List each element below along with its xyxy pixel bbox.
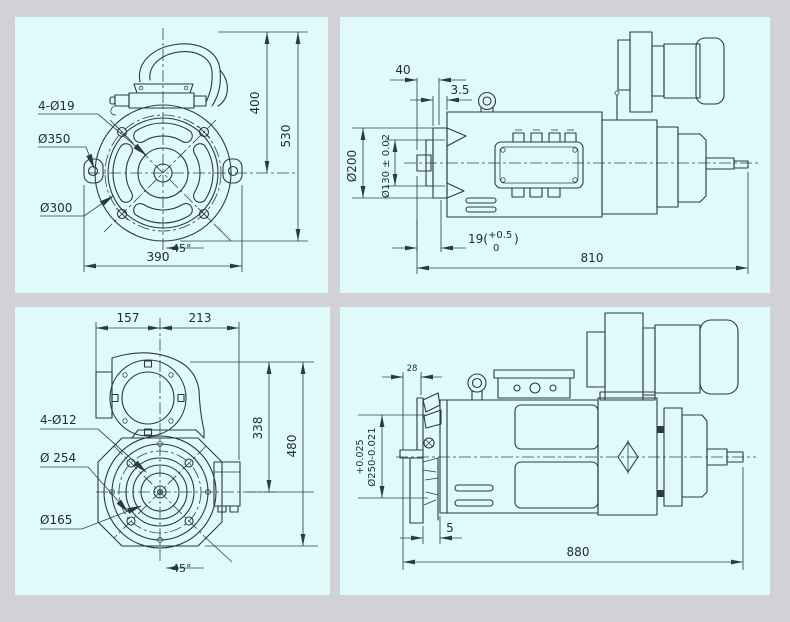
dim-338-label: 338 xyxy=(251,417,265,440)
panel-front-view-blower-motor: 157 213 338 480 4-Ø12 Ø 254 Ø165 45° xyxy=(15,307,330,595)
detail-square-top xyxy=(657,426,664,433)
dim-530-label: 530 xyxy=(279,125,293,148)
dim-d250-upper-tol: +0.025 xyxy=(355,439,366,474)
dim-880-label: 880 xyxy=(567,545,590,559)
drawing-sheet: 400 530 390 4-Ø19 Ø350 Ø300 45° xyxy=(0,0,790,622)
dim-213-label: 213 xyxy=(189,311,212,325)
dim-bolt-holes-label: 4-Ø19 xyxy=(38,99,75,113)
panel-front-view-flange-motor: 400 530 390 4-Ø19 Ø350 Ø300 45° xyxy=(15,17,328,293)
dim-40-label: 40 xyxy=(395,63,410,77)
dim-bolt-circle-label: Ø300 xyxy=(40,201,72,215)
dim-bolt-circle-label: Ø 254 xyxy=(40,451,76,465)
dim-angle-label: 45° xyxy=(172,562,192,575)
dim-390-label: 390 xyxy=(147,250,170,264)
dim-bolt-holes-label: 4-Ø12 xyxy=(40,413,77,427)
detail-square-bottom xyxy=(657,490,664,497)
dim-5-label: 5 xyxy=(446,521,454,535)
dim-400-label: 400 xyxy=(248,92,262,115)
dim-angle-label: 45° xyxy=(172,242,192,255)
panel-side-view-motor-810: 40 3.5 Ø200 Ø130 ± 0.02 19( +0.5 0 ) 810 xyxy=(340,17,770,293)
panel-side-view-motor-880: 28 +0.025 Ø250-0.021 5 880 xyxy=(340,307,770,595)
panel-background xyxy=(340,307,770,595)
dim-flange-od-label: Ø350 xyxy=(38,132,70,146)
dim-157-label: 157 xyxy=(117,311,140,325)
dim-19-close: ) xyxy=(514,232,519,246)
dim-19-lower-tol: 0 xyxy=(493,243,499,254)
dim-810-label: 810 xyxy=(581,251,604,265)
dim-19-prefix: 19( xyxy=(468,232,488,246)
dim-d130-label: Ø130 ± 0.02 xyxy=(380,134,392,198)
dim-28-label: 28 xyxy=(407,364,418,374)
dim-d250-label: Ø250-0.021 xyxy=(366,427,378,486)
dim-d200-label: Ø200 xyxy=(345,150,359,182)
dim-3p5-label: 3.5 xyxy=(450,83,469,97)
dim-spigot-label: Ø165 xyxy=(40,513,72,527)
dim-19-upper-tol: +0.5 xyxy=(488,230,512,241)
dim-480-label: 480 xyxy=(285,435,299,458)
